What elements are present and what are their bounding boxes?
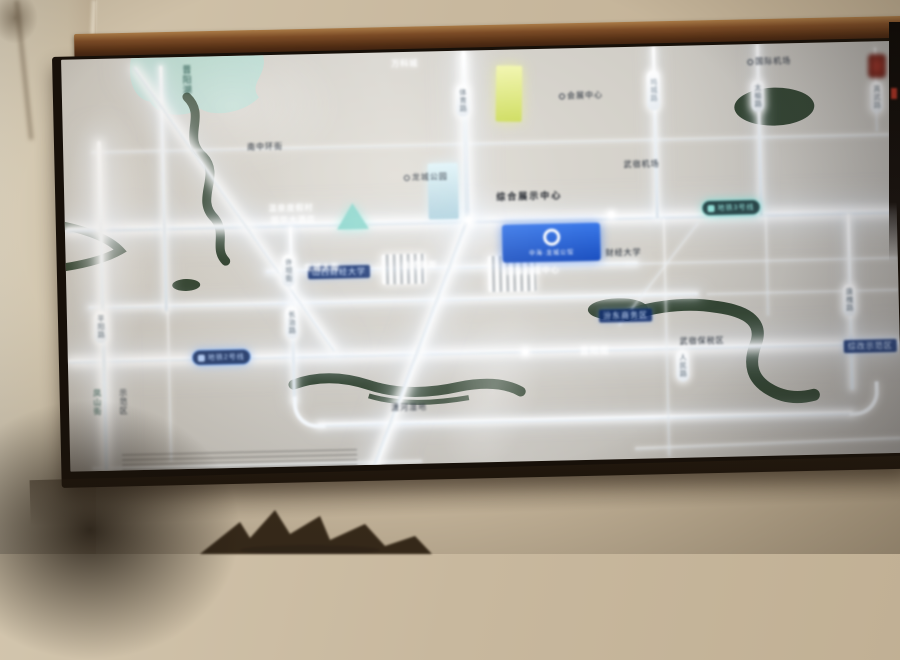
corner-shadow-bottom-left	[0, 400, 240, 660]
corner-shadow	[0, 0, 38, 44]
photo-right-edge	[889, 22, 900, 262]
red-sign-smudge	[868, 54, 886, 78]
red-mark	[891, 88, 897, 99]
